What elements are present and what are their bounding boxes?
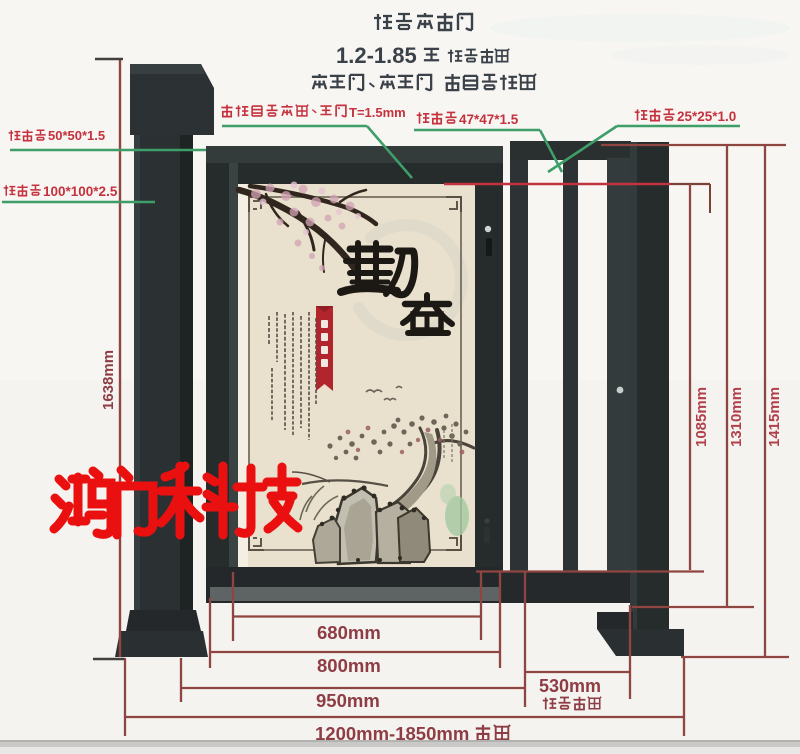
svg-text:100*100*2.5: 100*100*2.5 (43, 184, 118, 199)
svg-text:1085mm: 1085mm (693, 387, 710, 447)
svg-text:1638mm: 1638mm (100, 350, 117, 410)
svg-text:50*50*1.5: 50*50*1.5 (48, 128, 105, 143)
svg-text:1310mm: 1310mm (728, 387, 745, 447)
svg-text:530mm: 530mm (539, 676, 601, 696)
svg-text:950mm: 950mm (316, 690, 380, 711)
svg-text:47*47*1.5: 47*47*1.5 (459, 112, 519, 127)
svg-text:680mm: 680mm (317, 622, 381, 643)
svg-text:800mm: 800mm (317, 655, 381, 676)
svg-text:25*25*1.0: 25*25*1.0 (677, 109, 736, 124)
svg-text:T=1.5mm: T=1.5mm (349, 105, 406, 120)
svg-text:1415mm: 1415mm (766, 387, 783, 447)
svg-text:1.2-1.85: 1.2-1.85 (336, 43, 417, 68)
